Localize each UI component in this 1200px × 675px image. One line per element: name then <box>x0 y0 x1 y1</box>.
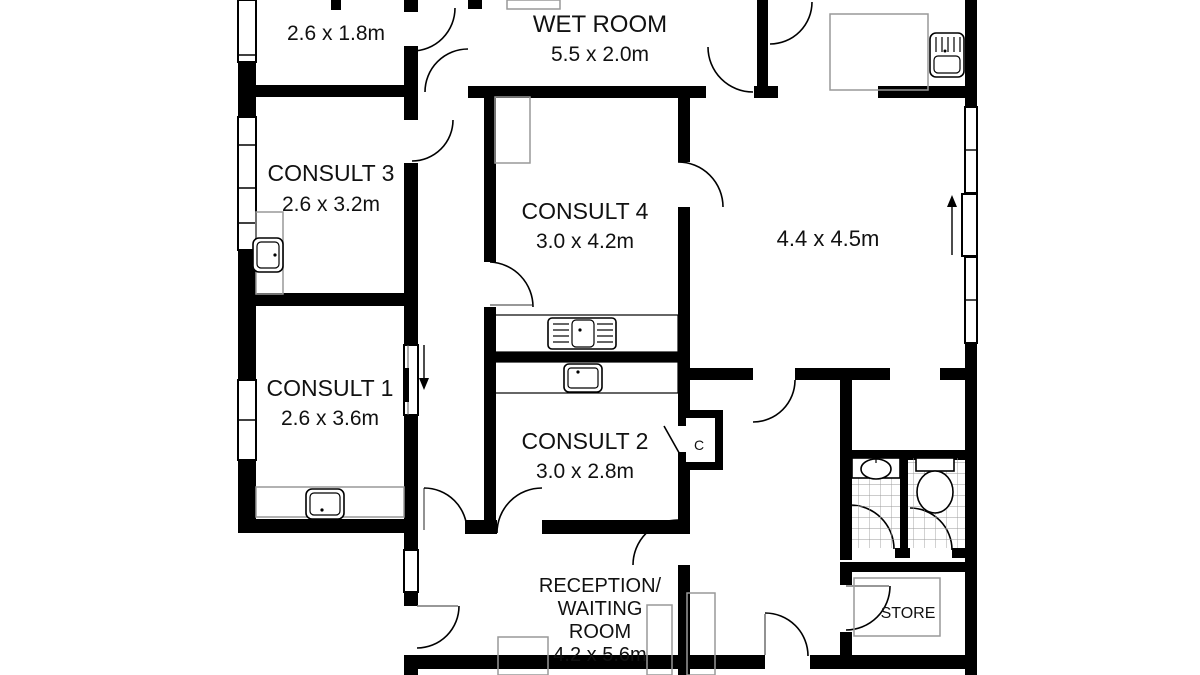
tiled-floor-basin-room <box>852 478 900 548</box>
door-consult3 <box>412 120 453 161</box>
label-consult4-name: CONSULT 4 <box>522 198 649 224</box>
label-small-top-left-dims: 2.6 x 1.8m <box>287 22 385 45</box>
counter-consult3 <box>253 212 283 294</box>
label-cupboard: C <box>694 437 704 453</box>
window-left-top <box>238 0 256 62</box>
door-corridor-reception <box>424 488 467 531</box>
door-reception-left-entry <box>417 606 459 648</box>
label-reception-line1: RECEPTION/ <box>539 575 662 597</box>
door-wet-room-left <box>425 49 468 92</box>
kitchenette-counter <box>830 14 964 90</box>
window-left-consult1 <box>238 380 256 460</box>
door-wet-room-right <box>708 47 753 92</box>
label-reception-line3: ROOM <box>569 621 631 643</box>
entry-arrow-large-room <box>947 195 957 255</box>
window-left-consult3 <box>238 117 256 250</box>
cupboard-consult4 <box>495 97 530 163</box>
label-consult1-dims: 2.6 x 3.6m <box>281 407 379 430</box>
sidelight-consult1 <box>404 345 418 415</box>
entry-arrow-consult1 <box>419 345 429 390</box>
door-large-room <box>678 162 723 207</box>
hand-basin <box>852 458 900 479</box>
label-reception-dims: 4.2 x 5.6m <box>553 644 646 666</box>
label-reception-line2: WAITING <box>558 598 643 620</box>
label-wet-room-name: WET ROOM <box>533 11 667 38</box>
counter-consult4 <box>490 315 678 352</box>
counter-consult1 <box>256 487 404 519</box>
label-consult4-dims: 3.0 x 4.2m <box>536 230 634 253</box>
door-consult2 <box>497 488 542 533</box>
label-consult2-dims: 3.0 x 2.8m <box>536 460 634 483</box>
floor-plan: 2.6 x 1.8m WET ROOM 5.5 x 2.0m CONSULT 3… <box>0 0 1200 675</box>
window-reception-left <box>404 550 418 592</box>
window-right-lower <box>965 257 977 343</box>
window-right-upper <box>965 107 977 193</box>
window-right-recess <box>962 194 977 256</box>
wet-room-counter <box>507 0 560 9</box>
door-top-right-room <box>770 2 812 44</box>
toilet <box>916 458 954 513</box>
door-top-left-room <box>412 8 455 51</box>
label-consult3-name: CONSULT 3 <box>268 160 395 186</box>
label-store: STORE <box>881 605 936 622</box>
label-consult1-name: CONSULT 1 <box>267 375 394 401</box>
label-wet-room-dims: 5.5 x 2.0m <box>551 43 649 66</box>
label-consult3-dims: 2.6 x 3.2m <box>282 193 380 216</box>
door-consult4 <box>490 262 533 307</box>
label-large-room-dims: 4.4 x 4.5m <box>777 226 880 251</box>
counter-consult2 <box>490 362 678 393</box>
fixtures <box>253 0 965 675</box>
door-hallway <box>753 380 795 422</box>
door-bottom-entry <box>765 613 808 656</box>
label-consult2-name: CONSULT 2 <box>522 428 649 454</box>
door-cupboard-leaf <box>664 426 682 458</box>
